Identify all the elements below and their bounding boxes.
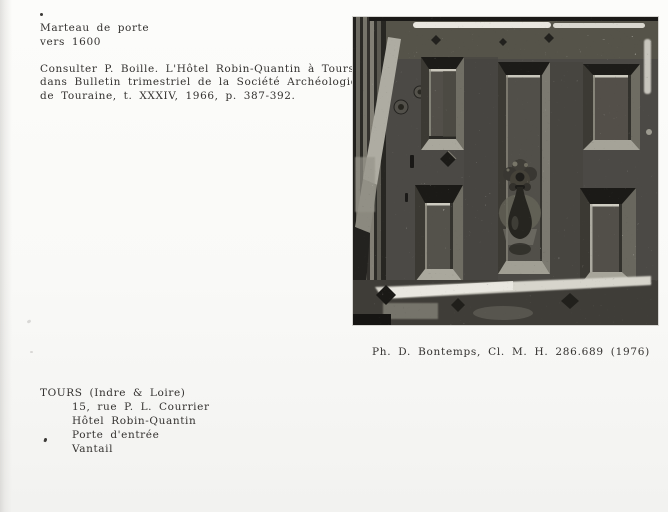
location-line: Porte d'entrée xyxy=(40,428,210,442)
location-line: Vantail xyxy=(40,442,210,456)
object-date: vers 1600 xyxy=(40,35,149,49)
door-photograph xyxy=(353,17,658,325)
reference-line: de Touraine, t. XXXIV, 1966, p. 387-392. xyxy=(40,90,372,103)
location-line: 15, rue P. L. Courrier xyxy=(40,400,210,414)
reference-line: dans Bulletin trimestriel de la Société … xyxy=(40,76,372,89)
paper-smudge xyxy=(27,319,32,324)
photo-caption: Ph. D. Bontemps, Cl. M. H. 286.689 (1976… xyxy=(372,346,650,358)
paint-speckles xyxy=(353,17,658,325)
archive-card: Marteau de porte vers 1600 Consulter P. … xyxy=(0,0,668,512)
location-block: TOURS (Indre & Loire) 15, rue P. L. Cour… xyxy=(40,386,210,456)
registration-dot-top xyxy=(40,13,43,16)
object-title-block: Marteau de porte vers 1600 xyxy=(40,21,149,49)
scan-edge-shadow xyxy=(0,0,12,512)
location-heading: TOURS (Indre & Loire) xyxy=(40,386,210,400)
bibliographic-reference: Consulter P. Boille. L'Hôtel Robin-Quant… xyxy=(40,63,372,103)
reference-line: Consulter P. Boille. L'Hôtel Robin-Quant… xyxy=(40,63,372,76)
paper-smudge xyxy=(30,351,33,353)
object-title: Marteau de porte xyxy=(40,21,149,35)
location-line: Hôtel Robin-Quantin xyxy=(40,414,210,428)
door-photo-image xyxy=(353,17,658,325)
